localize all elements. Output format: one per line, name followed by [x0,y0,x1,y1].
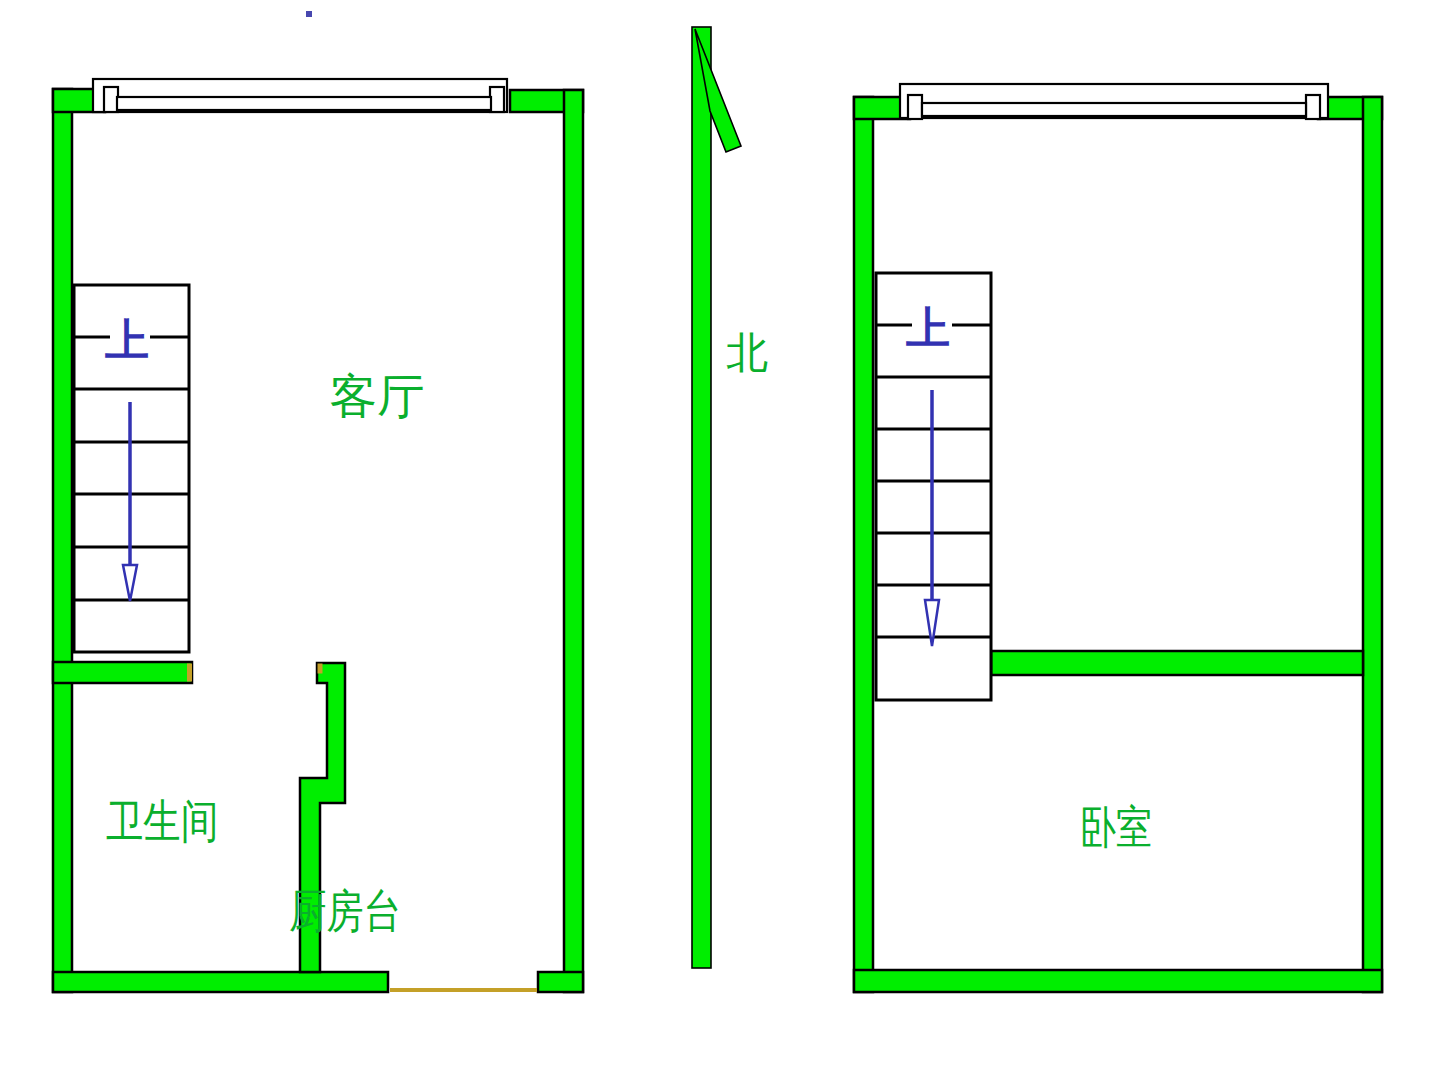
upper-floor-plan: 上 卧室 [854,84,1382,992]
lower-wall-bottom-left [53,972,388,992]
stair-up-label: 上 [105,314,149,365]
stair-up-label: 上 [906,302,950,353]
under-stair-partition [53,662,192,683]
floor-plan-drawing: 上 客厅 卫生间 厨房台 北 [0,0,1440,1080]
lower-wall-left [53,89,72,992]
bedroom-label: 卧室 [1080,800,1152,854]
kitchen-counter-label: 厨房台 [289,884,401,938]
floor-plan-canvas: 上 客厅 卫生间 厨房台 北 [0,0,1440,1080]
partition-end-cap [187,664,192,682]
bathroom-label: 卫生间 [106,794,218,848]
living-room-label: 客厅 [330,368,425,424]
upper-window-jamb-right [1306,95,1320,119]
lower-staircase: 上 [74,285,189,652]
lower-wall-bottom-right-corner [538,972,583,992]
upper-window-jamb-left [908,95,922,119]
lower-floor-plan: 上 客厅 卫生间 厨房台 [53,79,583,992]
upper-wall-right [1363,97,1382,992]
north-label: 北 [726,328,768,377]
lower-wall-right [564,90,583,992]
stray-dot [306,11,312,17]
upper-wall-bottom [854,970,1382,992]
kitchen-partition-end-cap [318,664,323,674]
upper-staircase: 上 [876,273,991,700]
north-arrow-pole [692,27,711,968]
north-compass: 北 [692,27,768,968]
upper-window-glass [922,103,1306,116]
lower-window-glass [117,97,491,110]
bedroom-divider-wall [991,651,1363,675]
upper-wall-left [854,97,873,992]
